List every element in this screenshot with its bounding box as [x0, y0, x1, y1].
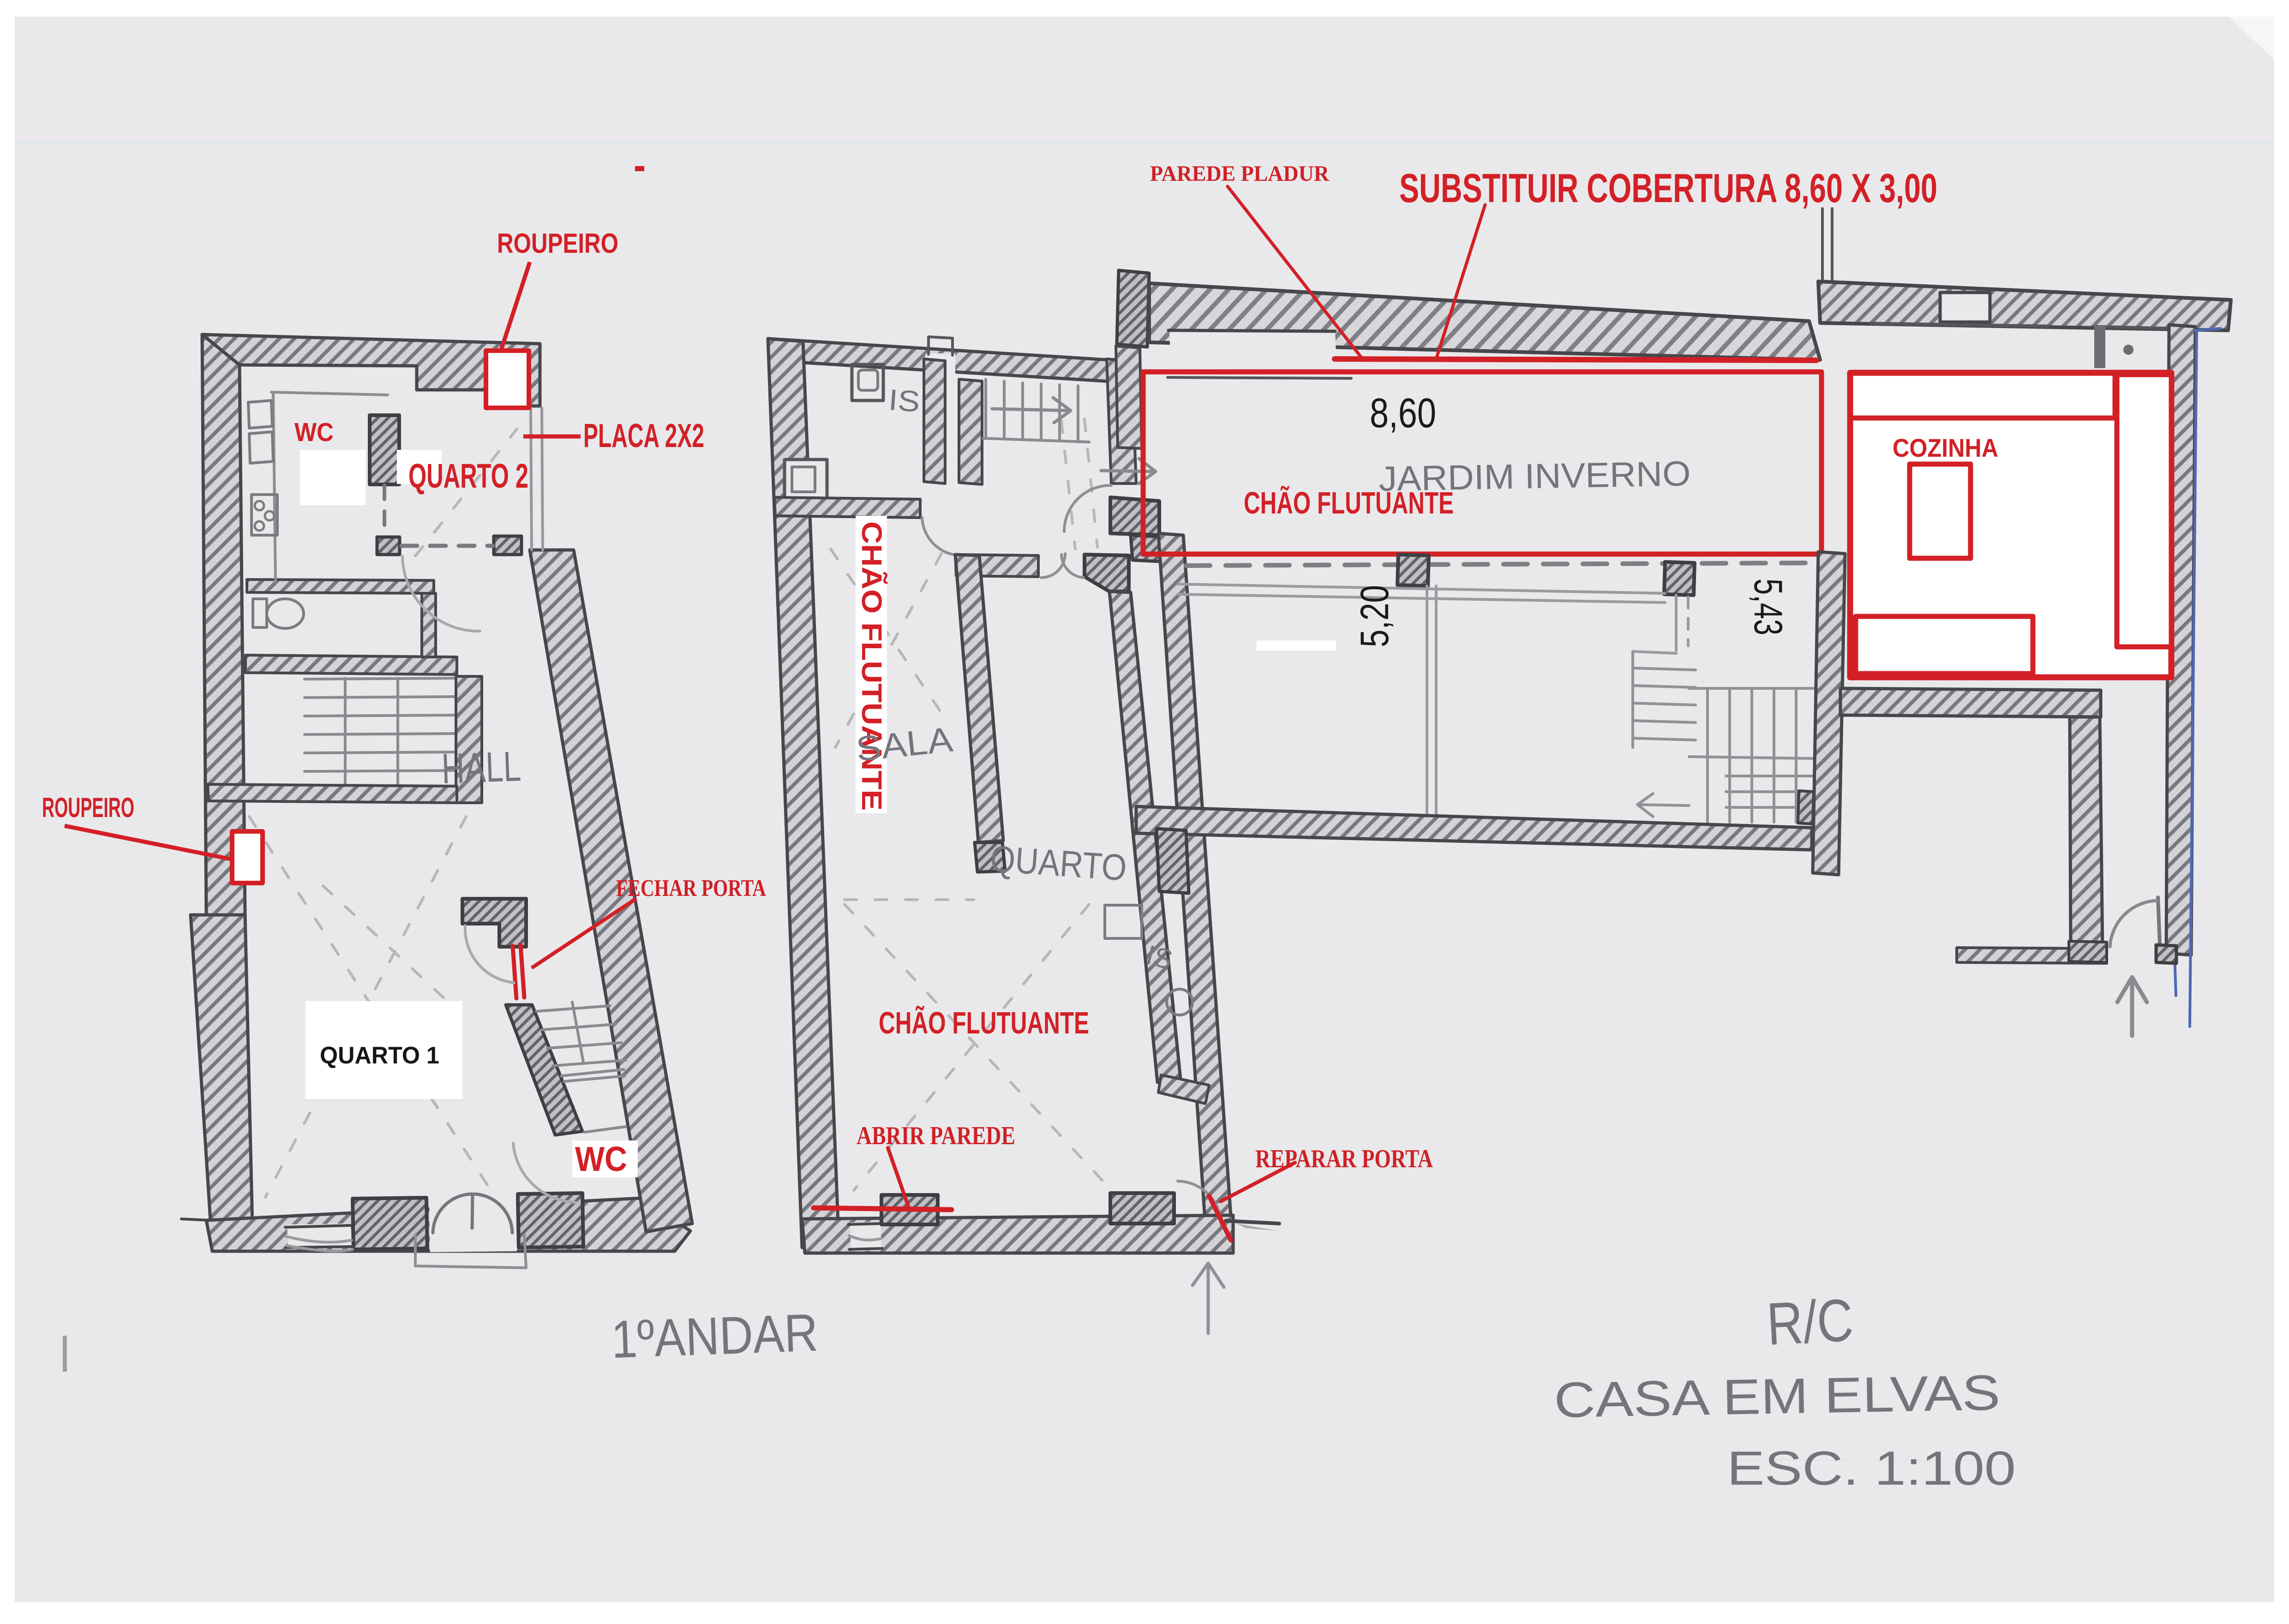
- svg-text:CHÃO FLUTUANTE: CHÃO FLUTUANTE: [1244, 486, 1454, 520]
- svg-text:8,60: 8,60: [1370, 390, 1436, 436]
- svg-text:SUBSTITUIR COBERTURA 8,60 X 3,: SUBSTITUIR COBERTURA 8,60 X 3,00: [1399, 165, 1937, 211]
- svg-text:ROUPEIRO: ROUPEIRO: [42, 792, 134, 823]
- svg-text:ABRIR PAREDE: ABRIR PAREDE: [857, 1122, 1015, 1150]
- svg-text:REPARAR PORTA: REPARAR PORTA: [1255, 1145, 1433, 1173]
- svg-text:HALL: HALL: [441, 743, 521, 793]
- svg-text:QUARTO 2: QUARTO 2: [408, 457, 528, 495]
- svg-text:IS: IS: [887, 383, 921, 418]
- svg-text:R/C: R/C: [1765, 1286, 1855, 1358]
- svg-text:PAREDE PLADUR: PAREDE PLADUR: [1150, 161, 1330, 186]
- svg-text:5,20: 5,20: [1353, 585, 1397, 647]
- svg-text:1ºANDAR: 1ºANDAR: [610, 1303, 819, 1369]
- svg-text:CHÃO FLUTUANTE: CHÃO FLUTUANTE: [879, 1006, 1089, 1040]
- svg-text:QUARTO 1: QUARTO 1: [320, 1042, 439, 1069]
- svg-text:WC: WC: [294, 418, 334, 447]
- svg-text:FECHAR PORTA: FECHAR PORTA: [616, 875, 766, 902]
- svg-text:CASA EM ELVAS: CASA EM ELVAS: [1553, 1364, 2001, 1428]
- svg-text:WC: WC: [575, 1140, 627, 1178]
- svg-text:PLACA 2X2: PLACA 2X2: [583, 418, 704, 454]
- svg-text:ROUPEIRO: ROUPEIRO: [497, 228, 618, 259]
- svg-text:ESC. 1:100: ESC. 1:100: [1727, 1442, 2016, 1495]
- svg-text:5,43: 5,43: [1746, 579, 1790, 635]
- svg-text:COZINHA: COZINHA: [1893, 433, 1998, 462]
